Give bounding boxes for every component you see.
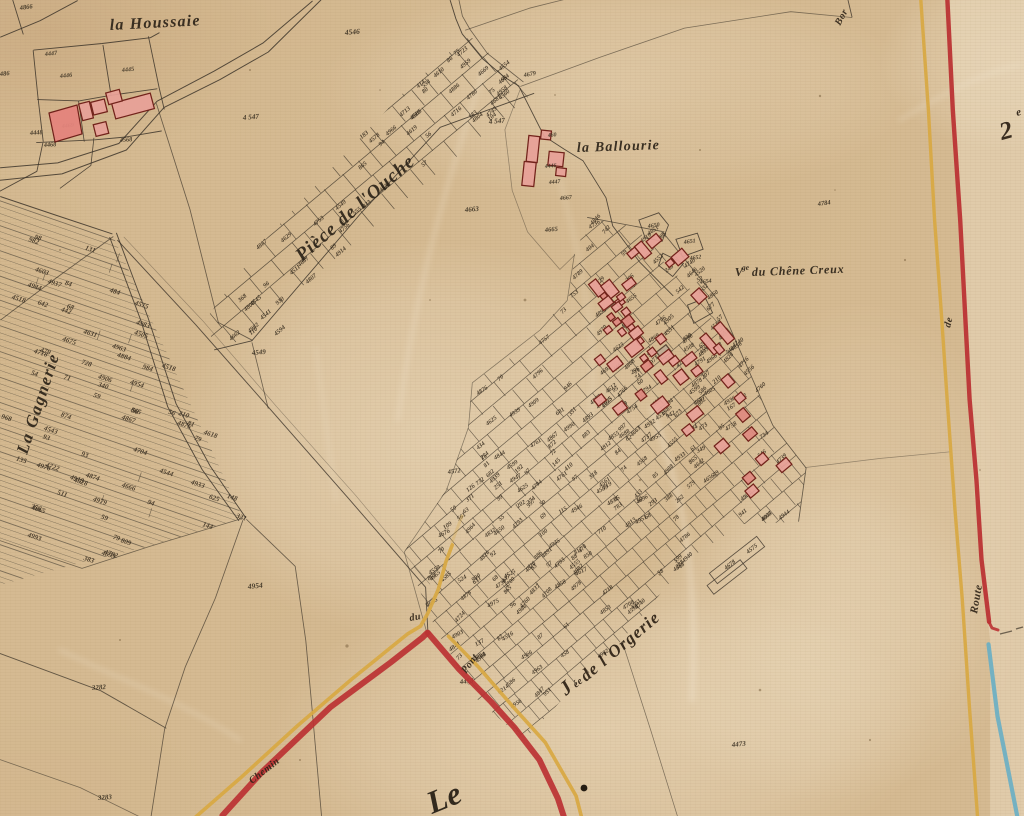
svg-text:4663: 4663 (463, 205, 479, 214)
svg-text:3282: 3282 (91, 683, 107, 692)
svg-text:4667: 4667 (559, 195, 573, 202)
svg-text:4 547: 4 547 (241, 113, 259, 123)
svg-text:4549: 4549 (250, 348, 266, 357)
svg-text:4473: 4473 (730, 740, 746, 750)
svg-text:4546: 4546 (343, 27, 360, 37)
svg-text:du: du (409, 611, 422, 624)
svg-text:4447: 4447 (548, 179, 562, 186)
svg-text:4446: 4446 (58, 72, 73, 80)
svg-text:ge: ge (741, 263, 750, 272)
svg-text:486: 486 (0, 70, 11, 78)
svg-text:460: 460 (547, 132, 557, 139)
svg-text:4954: 4954 (246, 580, 263, 591)
svg-text:la Ballourie: la Ballourie (577, 138, 661, 156)
svg-text:3283: 3283 (97, 793, 113, 802)
svg-text:4447: 4447 (43, 50, 58, 58)
svg-text:4468: 4468 (43, 141, 57, 149)
svg-text:4568: 4568 (119, 136, 133, 144)
svg-text:4448: 4448 (29, 129, 44, 137)
svg-text:4665: 4665 (544, 226, 559, 234)
svg-text:4445: 4445 (120, 66, 134, 74)
svg-text:4446: 4446 (544, 163, 557, 170)
